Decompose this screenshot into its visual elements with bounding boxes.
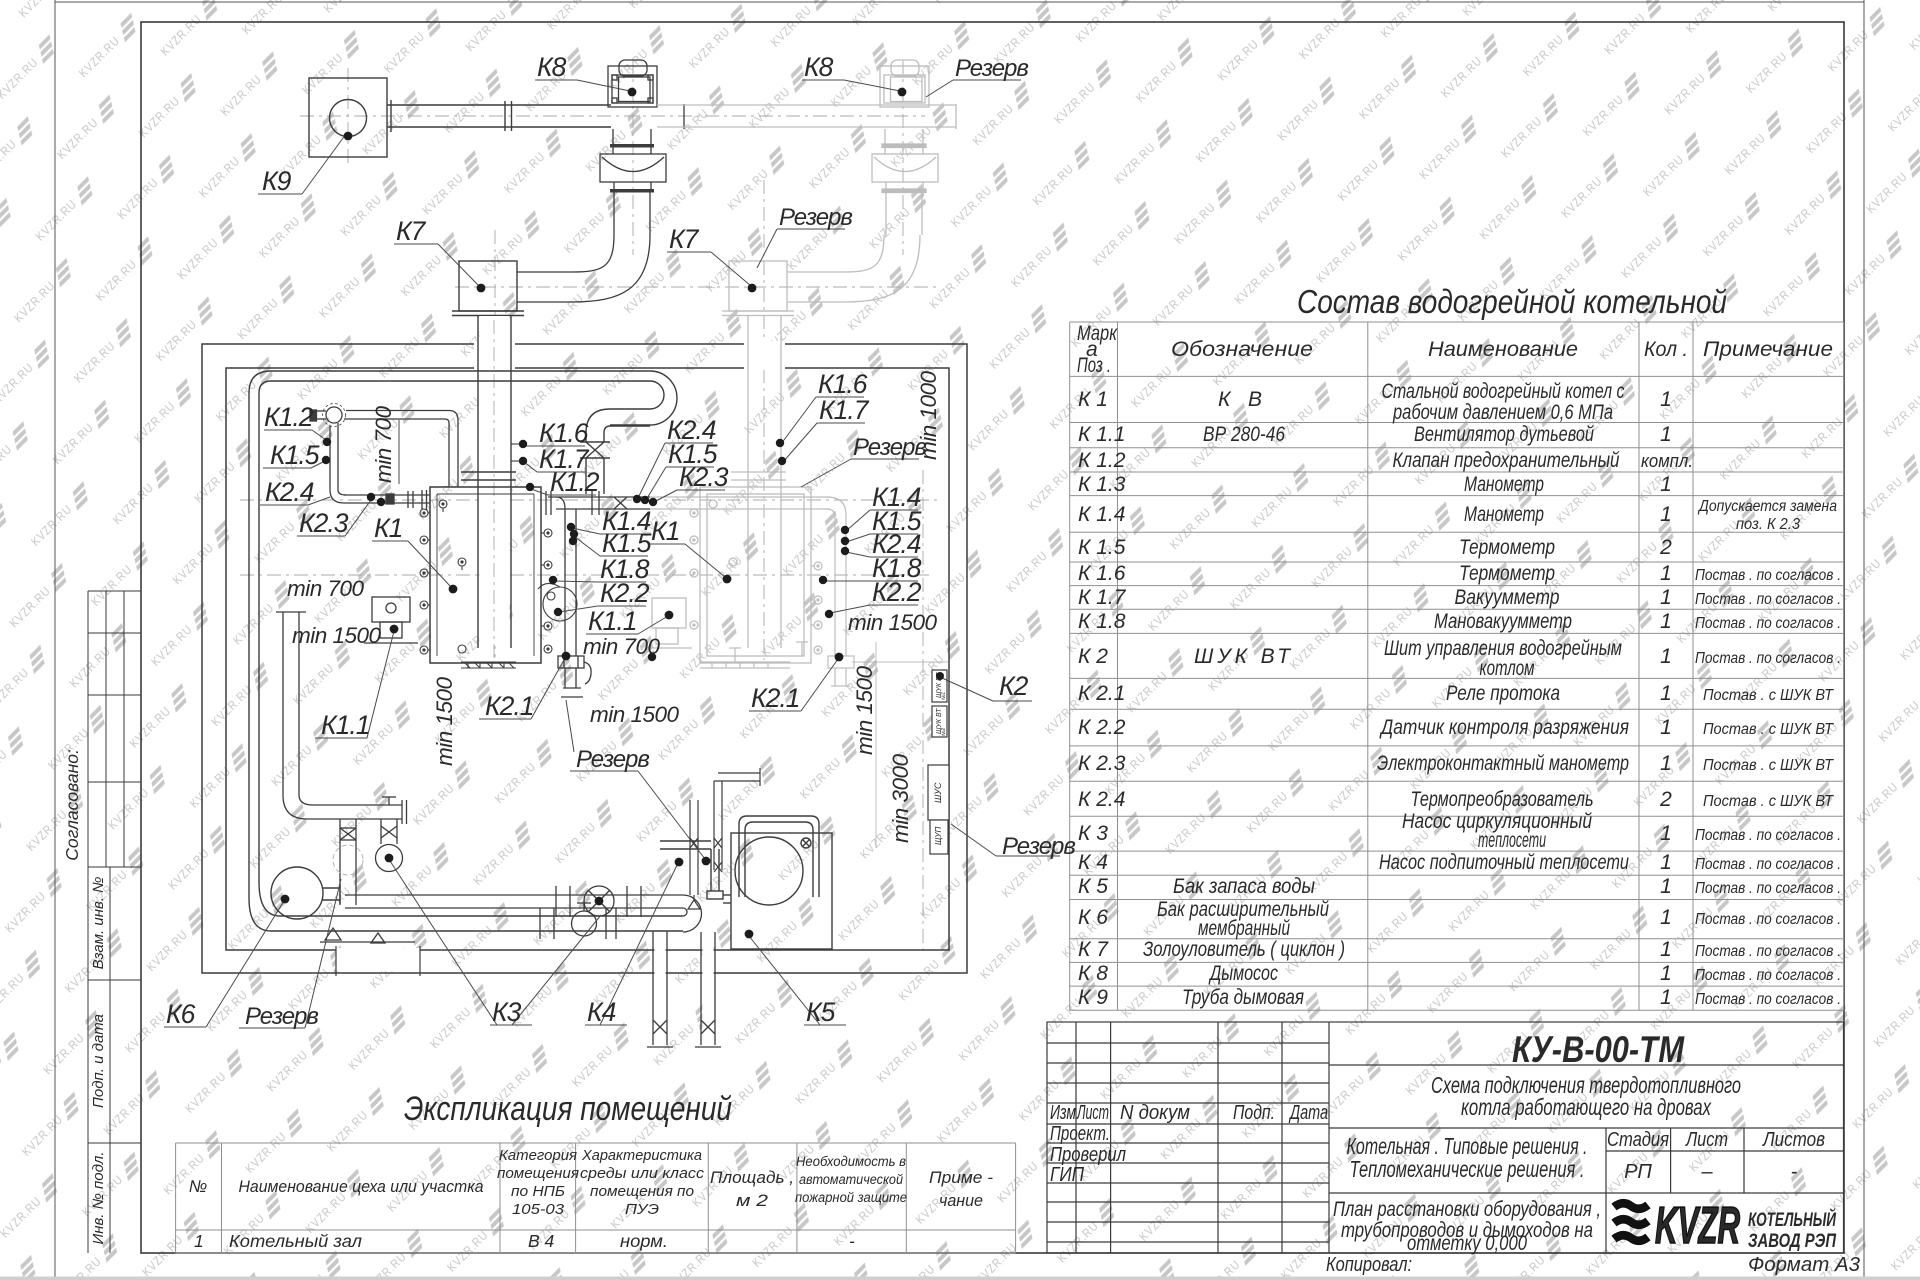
svg-text:К 1.6: К 1.6 [1078, 562, 1126, 585]
svg-text:Постав . с ШУК ВТ: Постав . с ШУК ВТ [1703, 757, 1834, 774]
svg-text:по НПБ: по НПБ [511, 1184, 565, 1200]
svg-text:1: 1 [1660, 423, 1672, 446]
svg-text:1: 1 [1660, 962, 1672, 985]
svg-text:К 7: К 7 [1078, 938, 1109, 961]
svg-text:Приме -: Приме - [929, 1168, 993, 1187]
svg-text:Изм: Изм [1050, 1102, 1076, 1124]
svg-text:Категория: Категория [499, 1148, 577, 1164]
svg-text:ЗАВОД РЭП: ЗАВОД РЭП [1748, 1231, 1836, 1252]
svg-text:К9: К9 [262, 166, 292, 196]
svg-text:Подп.: Подп. [1233, 1102, 1275, 1124]
svg-text:105-03: 105-03 [512, 1202, 564, 1218]
svg-text:К4: К4 [587, 997, 616, 1027]
svg-text:Площадь ,: Площадь , [710, 1168, 794, 1187]
svg-text:Постав . по согласов .: Постав . по согласов . [1695, 615, 1841, 632]
svg-text:помещения по: помещения по [590, 1184, 694, 1200]
svg-text:1: 1 [1660, 388, 1672, 411]
svg-text:Постав . с ШУК ВТ: Постав . с ШУК ВТ [1703, 793, 1834, 810]
svg-text:1: 1 [1660, 473, 1672, 496]
svg-text:К8: К8 [537, 52, 567, 82]
svg-text:К2.1: К2.1 [751, 683, 799, 713]
svg-text:Допускается замена: Допускается замена [1697, 498, 1837, 515]
svg-text:Копировал:: Копировал: [1326, 1254, 1412, 1276]
svg-text:К1.1: К1.1 [321, 710, 369, 740]
svg-text:К1.2: К1.2 [550, 467, 600, 497]
svg-text:2: 2 [1659, 788, 1672, 811]
svg-text:Датчик контроля разряжения: Датчик контроля разряжения [1379, 716, 1629, 739]
svg-text:Инв. № подл.: Инв. № подл. [90, 1151, 107, 1244]
svg-text:К2.4: К2.4 [265, 477, 314, 507]
svg-text:чание: чание [939, 1191, 983, 1210]
svg-text:Постав . по согласов .: Постав . по согласов . [1695, 991, 1841, 1008]
svg-text:поз. К 2.3: поз. К 2.3 [1736, 516, 1800, 533]
svg-text:1: 1 [1660, 752, 1672, 775]
svg-text:Постав . по согласов .: Постав . по согласов . [1695, 591, 1841, 608]
svg-text:Насос подпиточный теплосети: Насос подпиточный теплосети [1379, 851, 1629, 874]
svg-text:Термометр: Термометр [1459, 562, 1555, 585]
svg-text:Постав . по согласов .: Постав . по согласов . [1695, 911, 1841, 928]
svg-text:Мановакуумметр: Мановакуумметр [1434, 610, 1572, 633]
svg-text:ПУЭ: ПУЭ [625, 1202, 659, 1218]
svg-text:К7: К7 [669, 224, 700, 254]
svg-text:План расстановки оборудования: План расстановки оборудования , [1333, 1198, 1601, 1221]
svg-text:м 2: м 2 [736, 1191, 769, 1210]
svg-text:№1: №1 [941, 692, 947, 700]
svg-text:Лист: Лист [1684, 1129, 1728, 1151]
svg-text:1: 1 [1660, 562, 1672, 585]
svg-text:Подп. и дата: Подп. и дата [90, 1014, 107, 1108]
svg-text:Поз .: Поз . [1077, 354, 1111, 377]
svg-text:рабочим давлением 0,6 МПа: рабочим давлением 0,6 МПа [1392, 401, 1613, 424]
svg-text:1: 1 [1660, 822, 1672, 845]
svg-text:К 2.3: К 2.3 [1078, 752, 1126, 775]
svg-text:Вакуумметр: Вакуумметр [1455, 586, 1560, 609]
svg-text:min 1500: min 1500 [292, 623, 382, 648]
svg-text:-: - [1791, 1161, 1798, 1183]
svg-text:Резерв: Резерв [955, 55, 1028, 82]
svg-text:теплосети: теплосети [1478, 829, 1546, 852]
svg-text:min 1500: min 1500 [848, 610, 938, 635]
svg-text:Наименование: Наименование [1428, 338, 1578, 361]
svg-text:К 1.8: К 1.8 [1078, 610, 1126, 633]
svg-text:К 6: К 6 [1078, 906, 1108, 929]
svg-text:Постав . по согласов .: Постав . по согласов . [1695, 943, 1841, 960]
svg-text:1: 1 [1660, 645, 1672, 668]
svg-text:1: 1 [1660, 906, 1672, 929]
svg-text:К 2.4: К 2.4 [1078, 788, 1125, 811]
svg-text:К 4: К 4 [1078, 851, 1108, 874]
svg-text:1: 1 [1660, 938, 1672, 961]
svg-text:К1.5: К1.5 [270, 440, 320, 470]
svg-text:N докум: N докум [1120, 1102, 1190, 1124]
svg-text:min 1500: min 1500 [590, 702, 680, 727]
svg-text:В 4: В 4 [528, 1231, 555, 1251]
svg-text:К 1: К 1 [1078, 388, 1108, 411]
svg-text:К1: К1 [374, 513, 402, 543]
svg-text:Клапан предохранительный: Клапан предохранительный [1393, 449, 1620, 472]
svg-text:Резерв: Резерв [245, 1003, 318, 1030]
svg-text:ШУС: ШУС [933, 782, 943, 803]
svg-text:К 1.4: К 1.4 [1078, 503, 1125, 526]
svg-text:Манометр: Манометр [1464, 473, 1544, 496]
svg-text:норм.: норм. [620, 1231, 668, 1251]
svg-text:К2: К2 [999, 671, 1029, 701]
svg-text:РП: РП [1624, 1161, 1652, 1183]
svg-text:ШУК ВТ: ШУК ВТ [1194, 645, 1292, 668]
svg-text:КОТЕЛЬНЫЙ: КОТЕЛЬНЫЙ [1748, 1209, 1836, 1231]
svg-text:ЩУП: ЩУП [934, 827, 943, 845]
svg-text:Постав . по согласов .: Постав . по согласов . [1695, 567, 1841, 584]
svg-text:К1.2: К1.2 [264, 402, 314, 432]
svg-text:KVZR: KVZR [1655, 1197, 1740, 1255]
svg-text:Манометр: Манометр [1464, 503, 1544, 526]
svg-text:Стальной водогрейный котел с: Стальной водогрейный котел с [1382, 380, 1625, 403]
svg-text:Наименование цеха или участка: Наименование цеха или участка [239, 1177, 484, 1196]
svg-text:К1: К1 [651, 516, 679, 546]
svg-text:компл.: компл. [1641, 451, 1693, 471]
svg-text:Проект.: Проект. [1050, 1123, 1110, 1145]
svg-text:min 1000: min 1000 [916, 370, 941, 460]
svg-text:К 2.2: К 2.2 [1078, 716, 1126, 739]
svg-text:Постав . по согласов .: Постав . по согласов . [1695, 650, 1841, 667]
svg-text:Постав . с ШУК ВТ: Постав . с ШУК ВТ [1703, 721, 1834, 738]
svg-text:min 700: min 700 [287, 576, 365, 601]
svg-text:1: 1 [194, 1231, 204, 1251]
svg-text:помещения: помещения [497, 1166, 579, 1182]
svg-text:К6: К6 [166, 999, 196, 1029]
svg-text:Резерв: Резерв [779, 204, 852, 231]
svg-text:Стадия: Стадия [1607, 1129, 1669, 1151]
svg-text:К8: К8 [804, 52, 834, 82]
svg-text:мембранный: мембранный [1198, 917, 1290, 940]
svg-text:–: – [1700, 1161, 1713, 1183]
svg-text:Согласовано:: Согласовано: [62, 749, 82, 861]
svg-text:Примечание: Примечание [1703, 338, 1833, 361]
svg-text:Экспликация помещений: Экспликация помещений [404, 1090, 732, 1128]
svg-text:Постав . по согласов .: Постав . по согласов . [1695, 880, 1841, 897]
svg-text:К 3: К 3 [1078, 822, 1108, 845]
svg-text:Постав . по согласов .: Постав . по согласов . [1695, 967, 1841, 984]
svg-text:К2.2: К2.2 [600, 578, 650, 608]
svg-text:Кол .: Кол . [1644, 338, 1688, 361]
svg-text:К 9: К 9 [1078, 986, 1108, 1009]
svg-text:К 1.7: К 1.7 [1078, 586, 1127, 609]
svg-text:1: 1 [1660, 875, 1672, 898]
svg-text:Характеристика: Характеристика [581, 1148, 702, 1164]
svg-text:№: № [189, 1177, 207, 1196]
svg-text:К1.7: К1.7 [819, 395, 870, 425]
svg-text:К 1.5: К 1.5 [1078, 536, 1126, 559]
svg-text:К 2: К 2 [1078, 645, 1108, 668]
svg-text:котла работающего на дровах: котла работающего на дровах [1461, 1094, 1712, 1120]
svg-text:котлом: котлом [1480, 657, 1535, 680]
svg-text:Реле протока: Реле протока [1446, 682, 1560, 705]
svg-text:Лист: Лист [1076, 1102, 1109, 1124]
svg-text:Термопреобразователь: Термопреобразователь [1411, 788, 1594, 811]
svg-text:min 1500: min 1500 [432, 676, 457, 766]
svg-text:Дымосос: Дымосос [1208, 962, 1278, 985]
svg-text:Необходимость в: Необходимость в [796, 1154, 906, 1169]
svg-text:Котельный зал: Котельный зал [229, 1231, 362, 1251]
svg-text:К 1.2: К 1.2 [1078, 449, 1126, 472]
svg-text:1: 1 [1660, 682, 1672, 705]
svg-text:К 5: К 5 [1078, 875, 1108, 898]
svg-text:Формат А3: Формат А3 [1748, 1254, 1860, 1276]
svg-text:1: 1 [1660, 503, 1672, 526]
svg-text:ВР 280-46: ВР 280-46 [1203, 423, 1285, 446]
svg-text:1: 1 [1660, 610, 1672, 633]
svg-text:К5: К5 [806, 997, 836, 1027]
svg-text:1: 1 [1660, 716, 1672, 739]
svg-text:min 3000: min 3000 [888, 753, 913, 843]
svg-text:Труба дымовая: Труба дымовая [1182, 986, 1304, 1009]
svg-text:min 700: min 700 [583, 634, 661, 659]
svg-text:2: 2 [1659, 536, 1672, 559]
svg-text:К 2.1: К 2.1 [1078, 682, 1125, 705]
svg-text:К2.3: К2.3 [679, 462, 729, 492]
svg-text:К2.1: К2.1 [485, 691, 533, 721]
svg-text:К3: К3 [492, 997, 522, 1027]
svg-text:Листов: Листов [1761, 1129, 1825, 1151]
svg-text:К2.3: К2.3 [299, 508, 349, 538]
svg-text:1: 1 [1660, 986, 1672, 1009]
svg-text:Постав . по согласов .: Постав . по согласов . [1695, 856, 1841, 873]
svg-text:отметку 0,000: отметку 0,000 [1407, 1232, 1527, 1255]
svg-text:Термометр: Термометр [1459, 536, 1555, 559]
svg-text:1: 1 [1660, 586, 1672, 609]
svg-text:Резерв: Резерв [1002, 833, 1075, 860]
svg-text:Обозначение: Обозначение [1171, 338, 1313, 361]
svg-text:Проверил: Проверил [1050, 1144, 1126, 1166]
svg-text:Взам. инв. №: Взам. инв. № [90, 877, 107, 970]
svg-text:Золоуловитель ( циклон ): Золоуловитель ( циклон ) [1143, 938, 1345, 961]
svg-text:КУ-В-00-ТМ: КУ-В-00-ТМ [1512, 1029, 1685, 1070]
svg-text:-: - [849, 1231, 855, 1251]
svg-text:К1.1: К1.1 [588, 606, 636, 636]
svg-text:min 1500: min 1500 [852, 665, 877, 755]
svg-text:Резерв: Резерв [576, 746, 649, 773]
svg-text:Дата: Дата [1289, 1102, 1328, 1124]
svg-text:К 1.3: К 1.3 [1078, 473, 1126, 496]
svg-text:К7: К7 [396, 216, 427, 246]
svg-text:среды или класс: среды или класс [580, 1166, 705, 1182]
svg-text:Бак запаса воды: Бак запаса воды [1173, 875, 1315, 898]
svg-text:min 700: min 700 [371, 405, 396, 483]
svg-text:Постав . по согласов .: Постав . по согласов . [1695, 827, 1841, 844]
svg-text:Вентилятор дутьевой: Вентилятор дутьевой [1414, 423, 1594, 446]
svg-text:К 1.1: К 1.1 [1078, 423, 1125, 446]
svg-text:Постав . с ШУК ВТ: Постав . с ШУК ВТ [1703, 687, 1834, 704]
svg-text:Электроконтактный манометр: Электроконтактный манометр [1377, 752, 1629, 775]
svg-text:1: 1 [1660, 851, 1672, 874]
svg-text:№2: №2 [941, 728, 947, 736]
svg-text:К2.2: К2.2 [872, 577, 922, 607]
svg-text:ГИП: ГИП [1050, 1164, 1084, 1186]
svg-text:Состав водогрейной котельной: Состав водогрейной котельной [1297, 283, 1727, 320]
svg-text:пожарной защите: пожарной защите [795, 1190, 907, 1205]
svg-text:автоматической: автоматической [799, 1172, 903, 1187]
svg-text:К 8: К 8 [1078, 962, 1108, 985]
svg-text:Тепломеханические решения .: Тепломеханические решения . [1350, 1156, 1585, 1182]
